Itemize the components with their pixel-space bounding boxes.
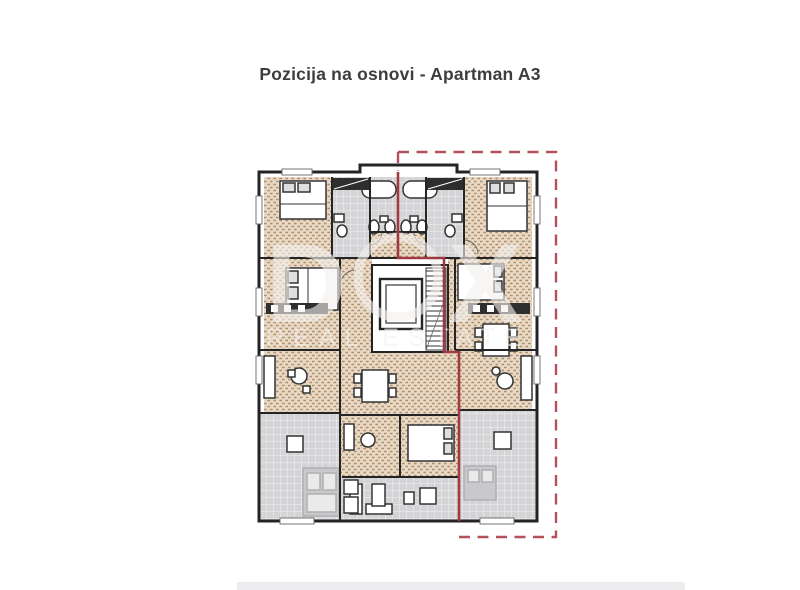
sink-icon xyxy=(410,216,418,222)
terrace-lounge-right xyxy=(464,466,496,500)
sofa-bottom-unit xyxy=(344,424,354,450)
round-table-bottom-unit xyxy=(361,433,375,447)
floorplan-image: D X REAL ESTATE xyxy=(0,0,800,590)
sofa-right-living xyxy=(521,356,532,400)
footer-bar xyxy=(237,582,685,590)
sink-icon xyxy=(380,216,388,222)
bed-left-top xyxy=(280,181,326,219)
sofa-left-living xyxy=(264,356,275,398)
terrace-table-left xyxy=(287,436,303,452)
watermark-subtitle: REAL ESTATE xyxy=(266,324,530,352)
bed-bottom-unit xyxy=(408,425,454,461)
closet-right xyxy=(427,178,463,190)
terrace-lounge-left xyxy=(303,468,339,516)
screenshot-root: Pozicija na osnovi - Apartman A3 xyxy=(0,0,800,590)
terrace-table-right xyxy=(494,432,511,449)
closet-left xyxy=(333,178,369,190)
